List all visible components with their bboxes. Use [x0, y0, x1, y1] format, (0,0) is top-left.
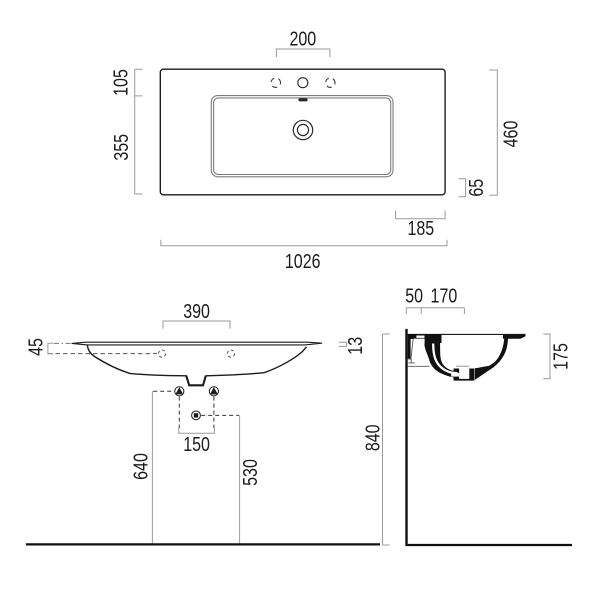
svg-text:45: 45: [26, 338, 48, 356]
svg-text:65: 65: [466, 179, 488, 197]
svg-text:185: 185: [407, 218, 434, 240]
svg-text:175: 175: [550, 343, 572, 370]
svg-text:150: 150: [183, 434, 210, 456]
svg-text:1026: 1026: [285, 251, 321, 273]
svg-text:840: 840: [362, 424, 384, 451]
svg-text:460: 460: [501, 121, 523, 148]
svg-text:390: 390: [183, 301, 210, 323]
svg-text:355: 355: [111, 134, 133, 161]
svg-text:530: 530: [240, 459, 262, 486]
svg-text:640: 640: [131, 453, 153, 480]
svg-text:170: 170: [431, 286, 458, 308]
svg-text:13: 13: [345, 337, 367, 355]
svg-text:50: 50: [405, 286, 423, 308]
svg-text:105: 105: [110, 69, 132, 96]
svg-text:200: 200: [289, 28, 316, 50]
